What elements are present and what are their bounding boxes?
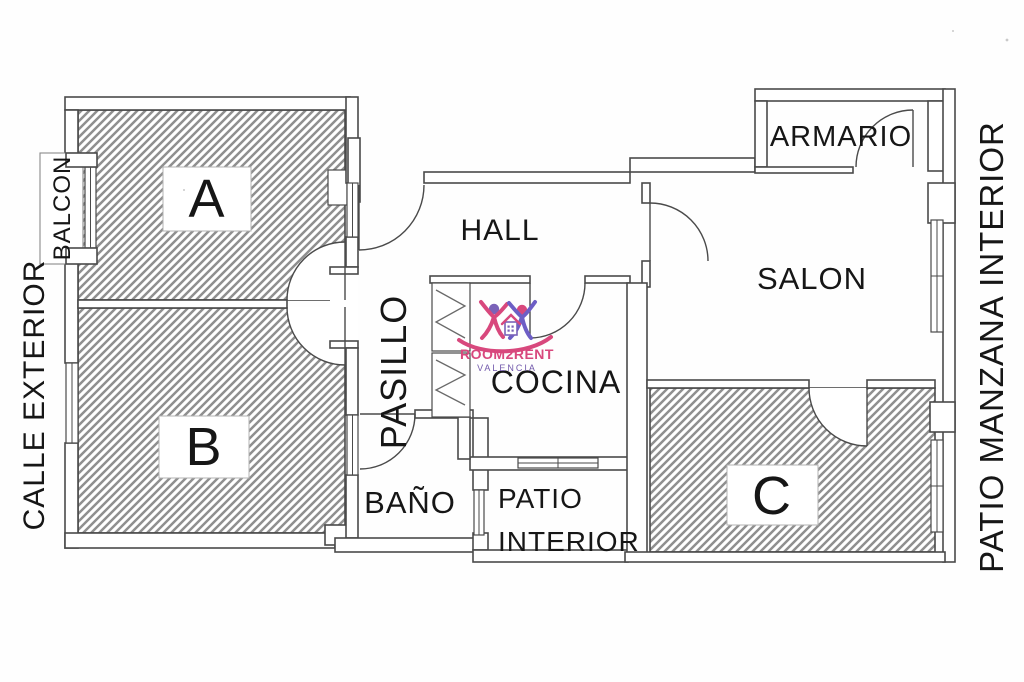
wall xyxy=(430,276,530,283)
room-label-salon: SALON xyxy=(757,261,867,296)
room-label-pasillo: PASILLO xyxy=(373,295,414,449)
logo-brand-text: ROOM2RENT xyxy=(460,346,554,362)
logo-city-text: VALENCIA xyxy=(477,363,537,373)
wall xyxy=(458,417,470,459)
label-patio-manzana-interior: PATIO MANZANA INTERIOR xyxy=(973,121,1010,573)
wall xyxy=(346,237,358,267)
floor-plan-image: A B C HALL SALON COCINA ARMARIO BAÑO PAT… xyxy=(0,0,1024,682)
wall xyxy=(625,552,945,562)
wall-pillar xyxy=(930,402,955,432)
label-calle-exterior: CALLE EXTERIOR xyxy=(18,260,51,531)
wall xyxy=(330,267,358,274)
wall xyxy=(943,89,955,562)
wall xyxy=(65,97,350,110)
room-label-bano: BAÑO xyxy=(364,485,456,520)
person-leg-icon xyxy=(482,317,494,338)
window-balcony-door xyxy=(85,167,96,248)
room-label-c: C xyxy=(752,466,792,526)
room-label-armario: ARMARIO xyxy=(770,121,912,153)
room-label-balcon: BALCON xyxy=(49,156,76,261)
wall xyxy=(630,158,755,172)
wall xyxy=(346,475,358,538)
wall xyxy=(755,167,853,173)
room-label-patio-line2: INTERIOR xyxy=(498,526,640,557)
closet-icon xyxy=(432,353,470,417)
wall xyxy=(65,248,78,363)
room-label-patio-line1: PATIO xyxy=(498,483,583,514)
wall xyxy=(647,380,809,388)
house-icon xyxy=(505,322,517,335)
wall xyxy=(473,418,488,490)
room-label-b: B xyxy=(185,417,222,477)
person-leg-icon xyxy=(494,317,503,337)
wall xyxy=(627,283,647,560)
wall-divider-a-b xyxy=(78,300,287,308)
wall xyxy=(424,172,630,183)
door-salon xyxy=(650,203,708,261)
wall xyxy=(346,348,358,415)
window-bano xyxy=(474,490,484,535)
window-salon-right xyxy=(931,220,943,332)
window-room-a-right xyxy=(347,183,358,237)
wall-recess xyxy=(328,170,347,205)
floor-plan-svg: A B C HALL SALON COCINA ARMARIO BAÑO PAT… xyxy=(0,0,1024,682)
room-label-a: A xyxy=(188,169,225,229)
wall xyxy=(335,538,475,552)
room-label-hall: HALL xyxy=(460,214,539,247)
wall xyxy=(330,341,358,348)
door-entrance xyxy=(359,185,424,250)
wall xyxy=(867,380,935,388)
window-room-c-right xyxy=(931,440,943,532)
window-room-b-left xyxy=(66,363,78,443)
wall xyxy=(755,101,767,167)
wall xyxy=(585,276,630,283)
closet-icon xyxy=(432,283,470,351)
window-cocina xyxy=(518,458,598,468)
wall xyxy=(65,533,335,548)
lobby-nook xyxy=(330,274,358,341)
wall-pillar xyxy=(928,183,955,223)
wall xyxy=(642,183,650,203)
wall xyxy=(755,89,945,101)
door-cocina xyxy=(530,283,585,338)
window-room-b-right xyxy=(347,415,358,475)
